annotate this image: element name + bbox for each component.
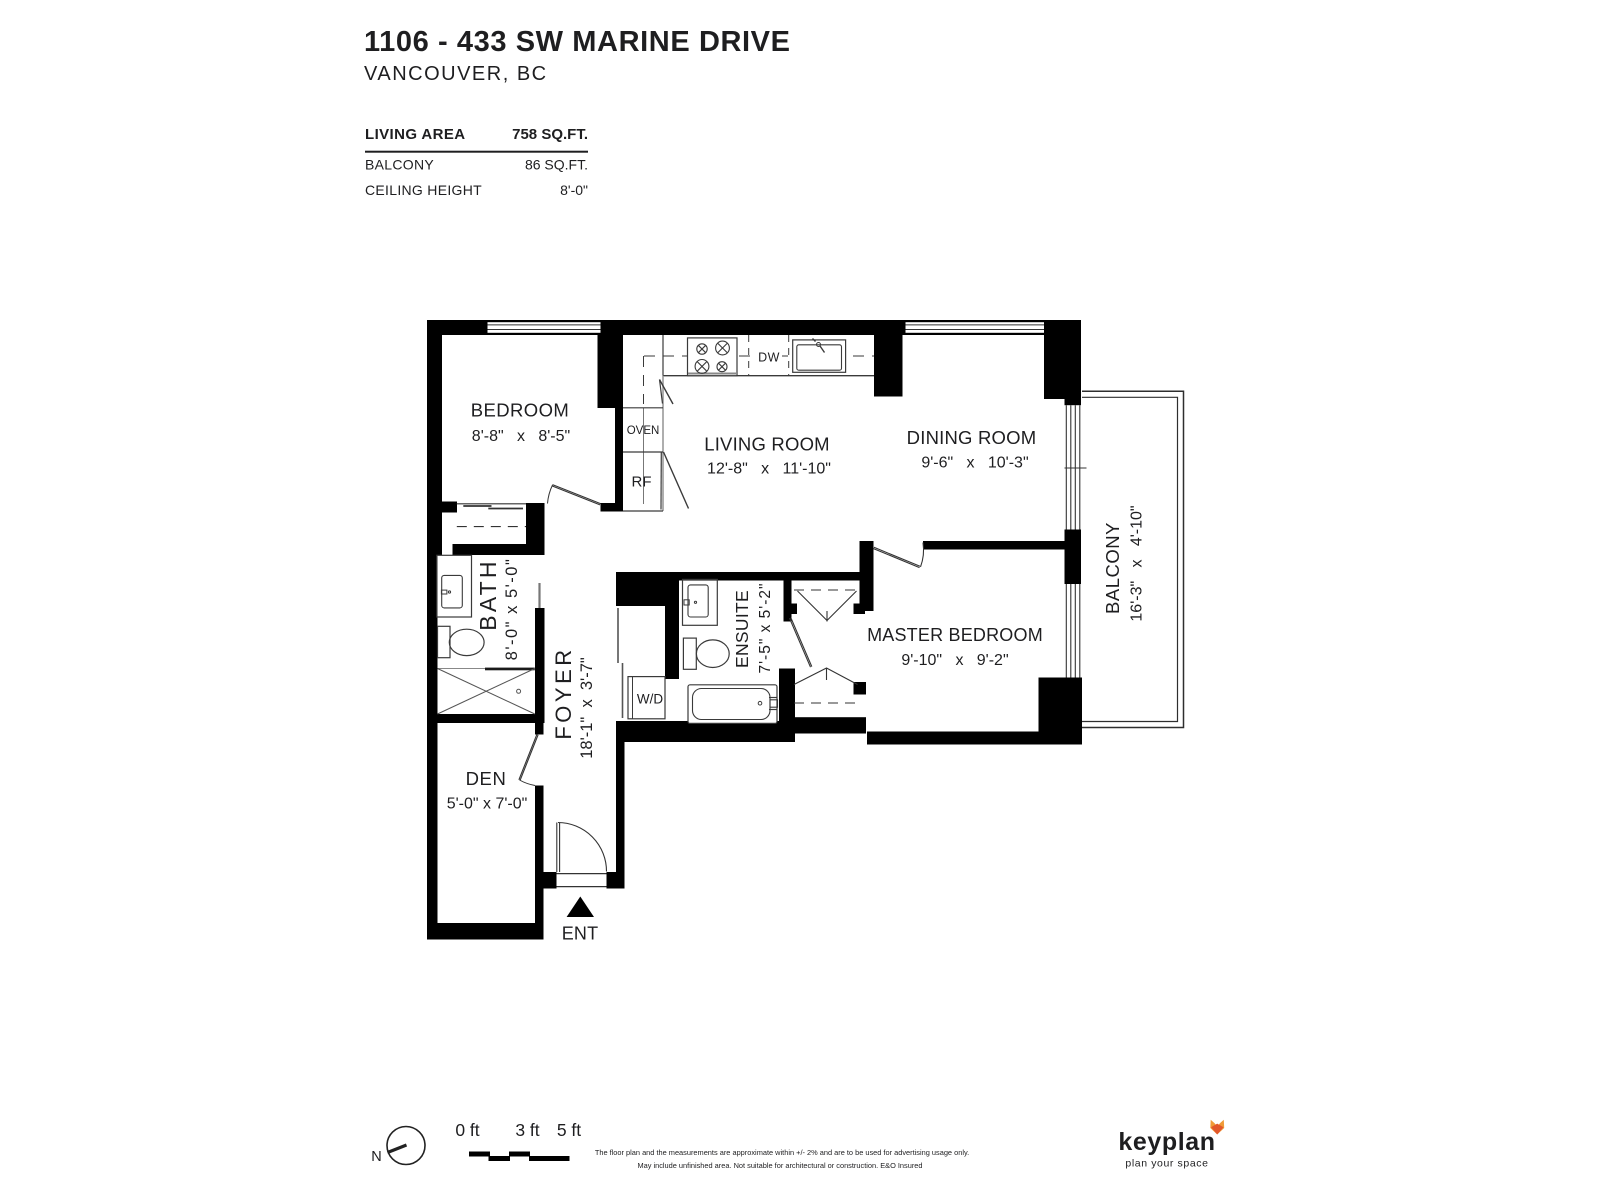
svg-text:MASTER BEDROOM: MASTER BEDROOM bbox=[867, 625, 1043, 645]
svg-text:8'-0": 8'-0" bbox=[560, 182, 588, 198]
svg-text:BEDROOM: BEDROOM bbox=[471, 400, 569, 421]
svg-text:VANCOUVER, BC: VANCOUVER, BC bbox=[364, 63, 548, 85]
svg-text:BATH: BATH bbox=[475, 558, 501, 630]
svg-text:16'-3" x 4'-10": 16'-3" x 4'-10" bbox=[1129, 505, 1146, 621]
svg-text:8'-8" x 8'-5": 8'-8" x 8'-5" bbox=[472, 428, 570, 445]
svg-text:0 ft: 0 ft bbox=[455, 1120, 479, 1140]
svg-text:8'-0" x 5'-0": 8'-0" x 5'-0" bbox=[503, 558, 521, 661]
svg-text:9'-6" x 10'-3": 9'-6" x 10'-3" bbox=[921, 455, 1028, 472]
svg-text:758 SQ.FT.: 758 SQ.FT. bbox=[512, 126, 588, 143]
svg-text:DW: DW bbox=[758, 351, 780, 365]
svg-text:DINING ROOM: DINING ROOM bbox=[907, 427, 1037, 448]
svg-text:W/D: W/D bbox=[637, 692, 663, 707]
svg-text:OVEN: OVEN bbox=[627, 425, 660, 437]
svg-text:plan your space: plan your space bbox=[1125, 1158, 1208, 1170]
svg-text:LIVING AREA: LIVING AREA bbox=[365, 126, 466, 143]
svg-text:5'-0" x 7'-0": 5'-0" x 7'-0" bbox=[447, 796, 528, 813]
svg-text:ENT: ENT bbox=[562, 924, 599, 944]
svg-text:5 ft: 5 ft bbox=[557, 1120, 581, 1140]
svg-text:9'-10" x 9'-2": 9'-10" x 9'-2" bbox=[901, 652, 1008, 669]
svg-text:CEILING HEIGHT: CEILING HEIGHT bbox=[365, 182, 482, 198]
svg-text:BALCONY: BALCONY bbox=[365, 157, 434, 173]
svg-text:RF: RF bbox=[632, 474, 652, 491]
svg-text:ENSUITE: ENSUITE bbox=[732, 590, 752, 668]
svg-text:1106 - 433 SW MARINE DRIVE: 1106 - 433 SW MARINE DRIVE bbox=[364, 26, 791, 58]
svg-text:18'-1" x 3'-7": 18'-1" x 3'-7" bbox=[578, 657, 596, 759]
svg-text:12'-8" x 11'-10": 12'-8" x 11'-10" bbox=[707, 461, 831, 478]
svg-text:BALCONY: BALCONY bbox=[1102, 522, 1123, 614]
svg-text:FOYER: FOYER bbox=[551, 646, 576, 739]
svg-text:DEN: DEN bbox=[466, 768, 507, 789]
svg-text:86 SQ.FT.: 86 SQ.FT. bbox=[525, 157, 588, 173]
svg-text:7'-5" x 5'-2": 7'-5" x 5'-2" bbox=[757, 582, 774, 673]
svg-text:May include unfinished area. N: May include unfinished area. Not suitabl… bbox=[637, 1161, 922, 1170]
svg-text:The floor plan and the measure: The floor plan and the measurements are … bbox=[595, 1148, 969, 1157]
svg-text:N: N bbox=[371, 1149, 381, 1165]
svg-text:LIVING ROOM: LIVING ROOM bbox=[704, 434, 830, 455]
svg-text:keyplan: keyplan bbox=[1118, 1128, 1215, 1156]
svg-text:3 ft: 3 ft bbox=[515, 1120, 539, 1140]
